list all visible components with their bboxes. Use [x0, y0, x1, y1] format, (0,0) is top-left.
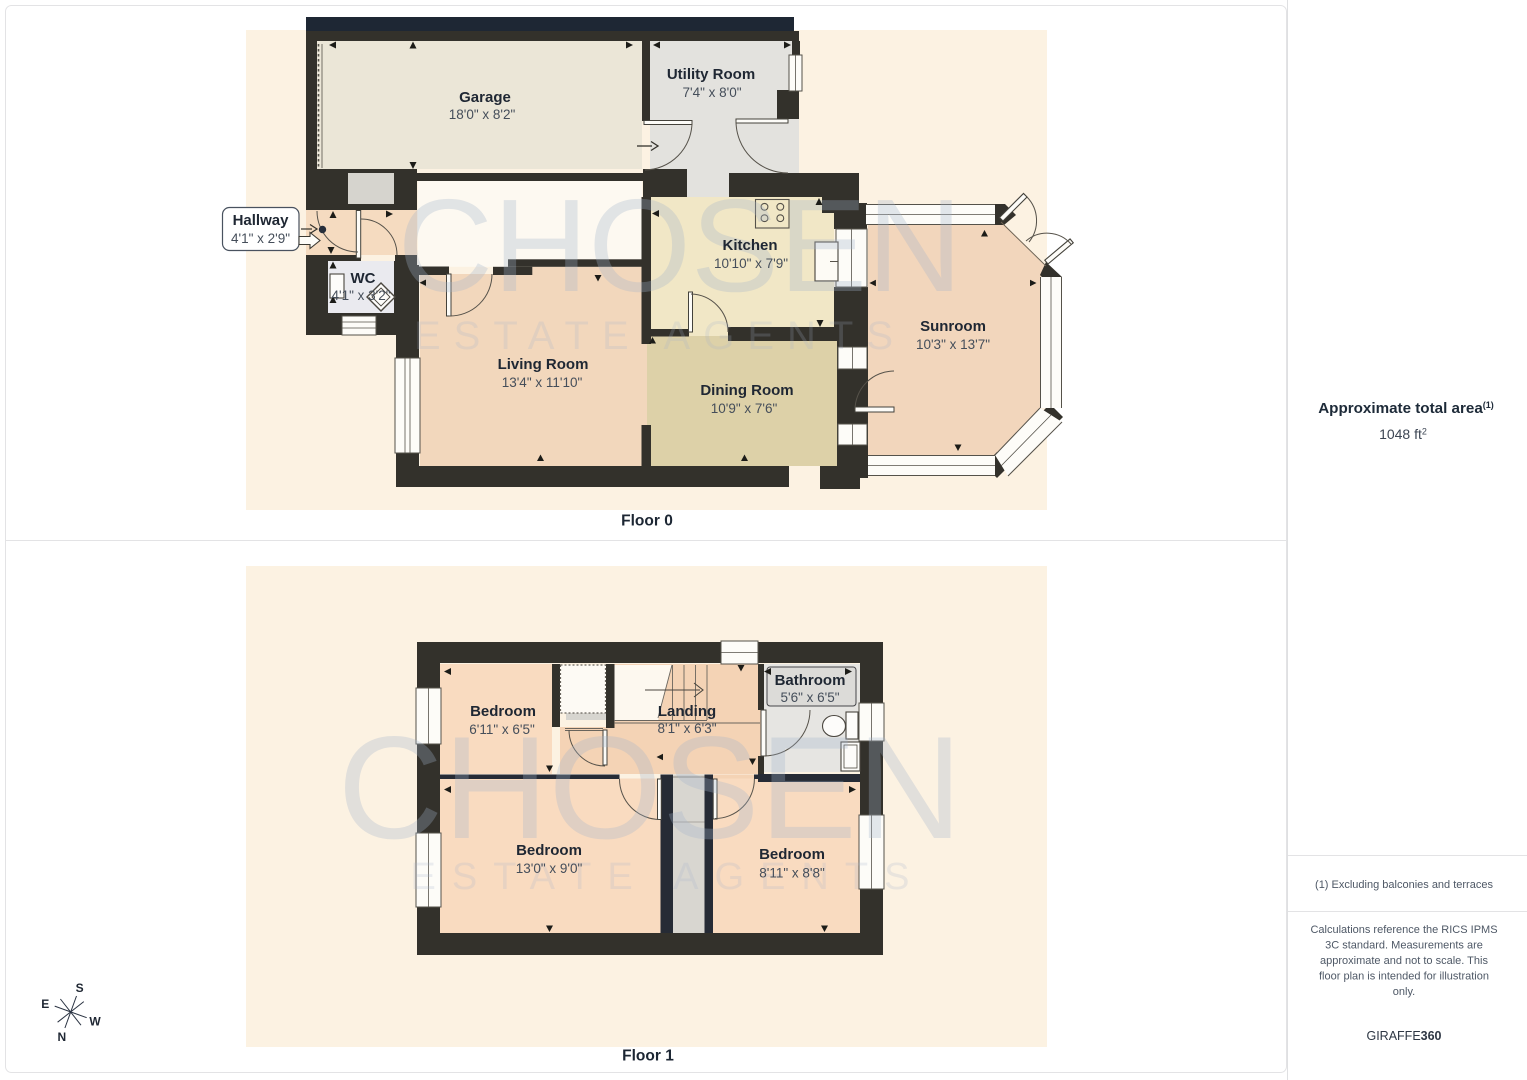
svg-text:Bedroom: Bedroom — [470, 703, 536, 720]
svg-text:Kitchen: Kitchen — [722, 237, 777, 254]
svg-text:WC: WC — [351, 270, 376, 287]
svg-text:Hallway: Hallway — [233, 212, 290, 229]
svg-text:10'3" x 13'7": 10'3" x 13'7" — [916, 337, 990, 352]
svg-text:GIRAFFE360: GIRAFFE360 — [1366, 1029, 1441, 1043]
svg-text:Landing: Landing — [658, 703, 716, 720]
svg-text:ESTATE AGENTS: ESTATE AGENTS — [414, 314, 906, 358]
svg-text:ESTATE AGENTS: ESTATE AGENTS — [411, 856, 926, 898]
svg-text:4'1" x 3'2": 4'1" x 3'2" — [331, 288, 390, 303]
svg-text:Living Room: Living Room — [498, 356, 589, 373]
svg-text:10'10" x 7'9": 10'10" x 7'9" — [714, 256, 788, 271]
svg-text:Floor 1: Floor 1 — [622, 1048, 674, 1065]
svg-text:7'4" x 8'0": 7'4" x 8'0" — [682, 85, 741, 100]
svg-text:3C standard. Measurements are: 3C standard. Measurements are — [1325, 940, 1483, 952]
svg-text:8'1" x 6'3": 8'1" x 6'3" — [657, 721, 716, 736]
svg-text:13'0" x 9'0": 13'0" x 9'0" — [516, 861, 583, 876]
svg-text:Calculations reference the RIC: Calculations reference the RICS IPMS — [1310, 924, 1497, 936]
svg-text:5'6" x 6'5": 5'6" x 6'5" — [780, 690, 839, 705]
svg-text:W: W — [89, 1015, 101, 1029]
svg-text:4'1" x 2'9": 4'1" x 2'9" — [231, 231, 290, 246]
svg-text:only.: only. — [1393, 986, 1415, 998]
svg-text:Utility Room: Utility Room — [667, 66, 755, 83]
svg-text:approximate and not to scale.: approximate and not to scale. This — [1320, 955, 1488, 967]
svg-text:(1) Excluding balconies and te: (1) Excluding balconies and terraces — [1315, 879, 1493, 891]
svg-text:Dining Room: Dining Room — [700, 382, 793, 399]
svg-text:6'11" x 6'5": 6'11" x 6'5" — [469, 722, 535, 737]
svg-text:Approximate total area(1): Approximate total area(1) — [1318, 400, 1494, 417]
svg-text:Bedroom: Bedroom — [759, 846, 825, 863]
svg-text:Sunroom: Sunroom — [920, 318, 986, 335]
svg-text:N: N — [57, 1030, 66, 1044]
svg-text:floor plan is intended for ill: floor plan is intended for illustration — [1319, 971, 1489, 983]
svg-text:1048 ft2: 1048 ft2 — [1379, 426, 1427, 442]
svg-text:E: E — [41, 997, 49, 1011]
svg-text:Bathroom: Bathroom — [775, 672, 846, 689]
svg-text:S: S — [76, 981, 84, 995]
svg-text:Garage: Garage — [459, 89, 511, 106]
svg-text:CHOSEN: CHOSEN — [398, 172, 963, 319]
svg-text:10'9" x 7'6": 10'9" x 7'6" — [711, 401, 778, 416]
svg-text:Floor 0: Floor 0 — [621, 513, 673, 530]
svg-text:13'4" x 11'10": 13'4" x 11'10" — [502, 375, 583, 390]
svg-text:18'0" x 8'2": 18'0" x 8'2" — [449, 107, 516, 122]
svg-text:CHOSEN: CHOSEN — [338, 706, 963, 869]
svg-text:Bedroom: Bedroom — [516, 842, 582, 859]
svg-text:8'11" x 8'8": 8'11" x 8'8" — [759, 866, 825, 881]
